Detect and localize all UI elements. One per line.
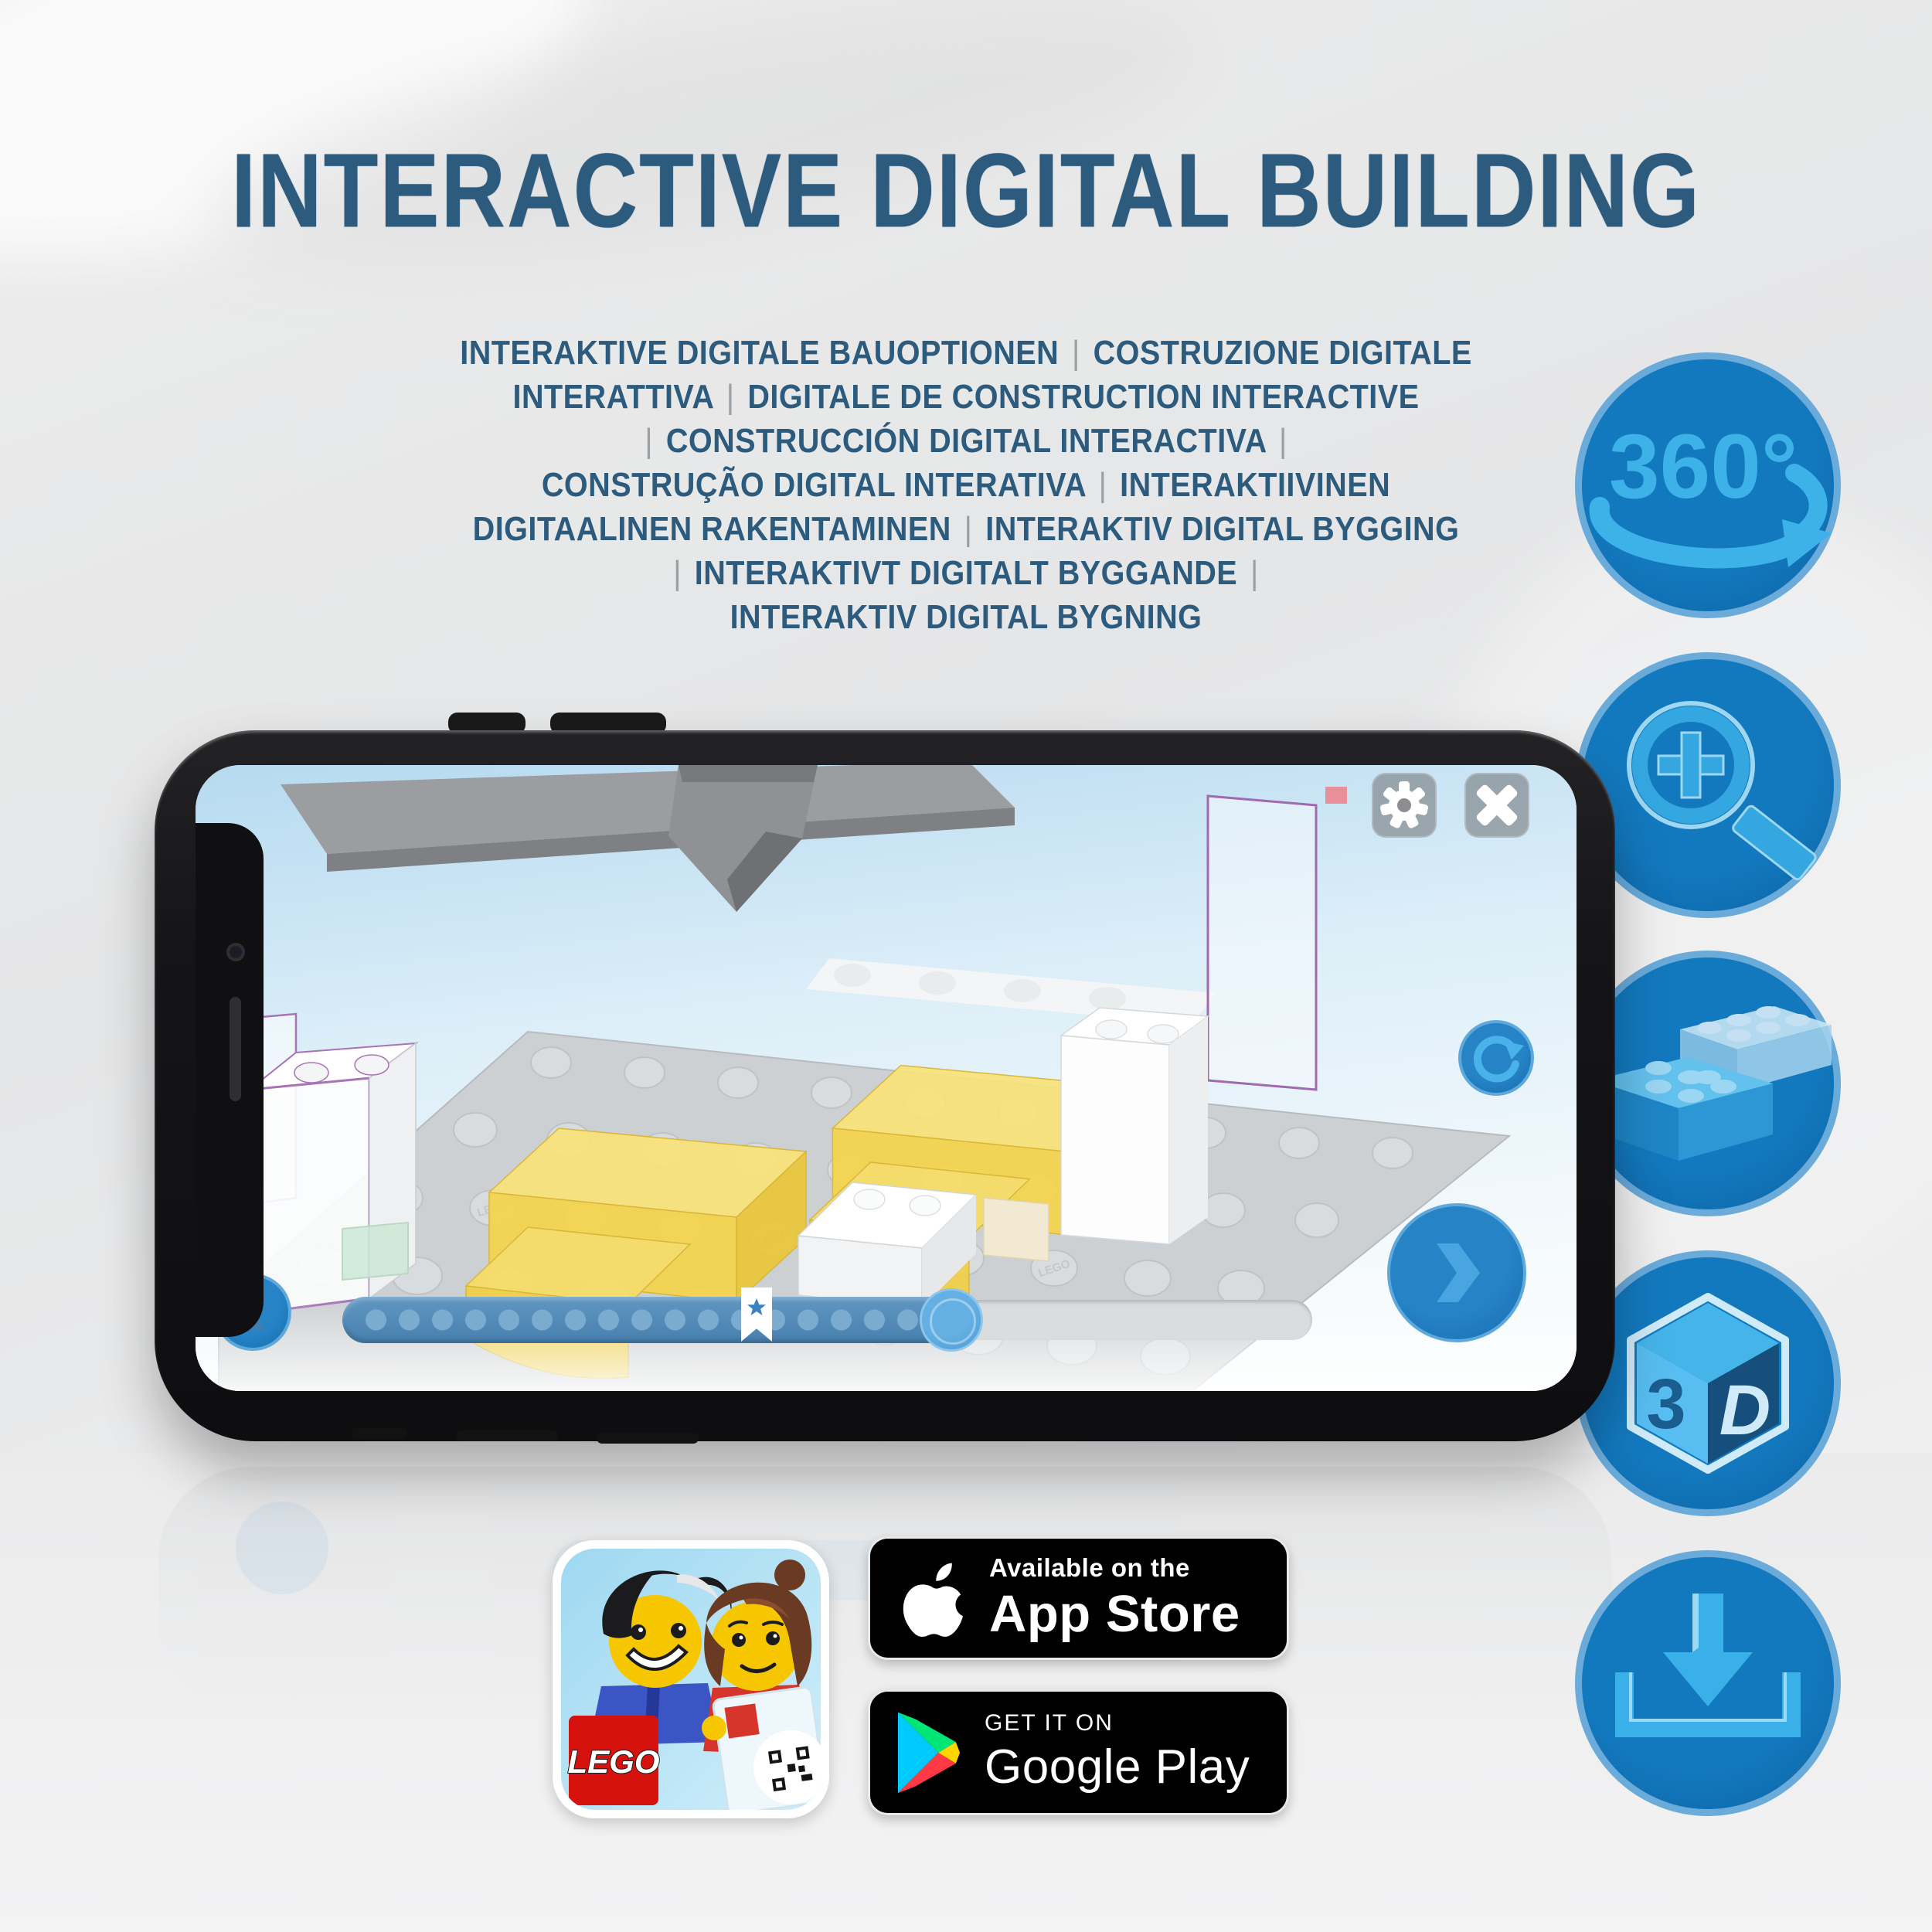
3d-cube-icon: 3 D: [1582, 1257, 1834, 1509]
svg-text:360°: 360°: [1609, 416, 1798, 518]
subtitle-line: | CONSTRUCCIÓN DIGITAL INTERACTIVA |: [340, 419, 1592, 463]
google-play-tagline: GET IT ON: [985, 1710, 1250, 1736]
apple-logo-icon: [893, 1553, 969, 1644]
progress-fill: [342, 1297, 968, 1343]
bricks-icon: [1582, 957, 1834, 1209]
download-icon: [1582, 1557, 1834, 1809]
magnifier-plus-icon: [1582, 659, 1834, 911]
subtitle-line: INTERAKTIVE DIGITALE BAUOPTIONEN | COSTR…: [340, 331, 1592, 375]
360-rotation-icon: 360°: [1582, 359, 1834, 611]
gear-icon: [1379, 781, 1429, 830]
phone-mockup: LEGO LEGO LEGO LEGO: [155, 730, 1615, 1441]
phone-speaker-port: [352, 1428, 407, 1439]
rotate-view-button[interactable]: [1458, 1020, 1534, 1096]
front-camera: [226, 943, 245, 961]
marketing-graphic: INTERACTIVE DIGITAL BUILDING INTERAKTIVE…: [0, 0, 1932, 1932]
step-dots: [359, 1297, 947, 1343]
phone-speaker-port: [456, 1430, 558, 1441]
svg-text:D: D: [1719, 1371, 1770, 1450]
subtitle-line: INTERATTIVA | DIGITALE DE CONSTRUCTION I…: [340, 375, 1592, 419]
app-store-badge[interactable]: Available on the App Store: [868, 1536, 1289, 1660]
multilingual-subtitle: INTERAKTIVE DIGITALE BAUOPTIONEN | COSTR…: [340, 331, 1592, 639]
settings-button[interactable]: [1372, 773, 1437, 838]
feature-360-rotation: 360°: [1575, 352, 1841, 618]
app-store-label: App Store: [989, 1584, 1240, 1644]
close-icon: [1472, 781, 1522, 830]
google-play-badge[interactable]: GET IT ON Google Play: [868, 1689, 1289, 1815]
close-button[interactable]: [1464, 773, 1529, 838]
build-progress-slider[interactable]: [342, 1297, 1312, 1343]
google-play-triangle-icon: [893, 1711, 964, 1794]
phone-notch: [196, 823, 264, 1337]
phone-speaker-port: [597, 1433, 699, 1444]
page-title: INTERACTIVE DIGITAL BUILDING: [77, 130, 1855, 251]
subtitle-line: DIGITAALINEN RAKENTAMINEN | INTERAKTIV D…: [340, 507, 1592, 551]
earpiece-speaker: [230, 997, 241, 1101]
subtitle-line: | INTERAKTIVT DIGITALT BYGGANDE |: [340, 551, 1592, 595]
next-step-button[interactable]: [1387, 1203, 1526, 1342]
slider-knob[interactable]: [920, 1288, 983, 1352]
lego-app-icon: LEGO: [553, 1540, 829, 1818]
subtitle-line: CONSTRUÇÃO DIGITAL INTERATIVA | INTERAKT…: [340, 463, 1592, 507]
qr-instruction-card: [713, 1685, 821, 1810]
chevron-right-icon: [1414, 1230, 1499, 1315]
lego-app-icon-art: LEGO: [561, 1549, 821, 1810]
subtitle-line: INTERAKTIV DIGITAL BYGNING: [340, 595, 1592, 639]
app-screen: LEGO LEGO LEGO LEGO: [196, 765, 1577, 1391]
app-store-tagline: Available on the: [989, 1553, 1240, 1583]
svg-text:3: 3: [1646, 1365, 1685, 1444]
google-play-label: Google Play: [985, 1740, 1250, 1794]
svg-text:LEGO: LEGO: [567, 1743, 659, 1780]
lego-logo: LEGO: [567, 1716, 659, 1805]
rotate-icon: [1468, 1030, 1524, 1086]
feature-download: [1575, 1550, 1841, 1816]
star-icon: [746, 1297, 767, 1318]
